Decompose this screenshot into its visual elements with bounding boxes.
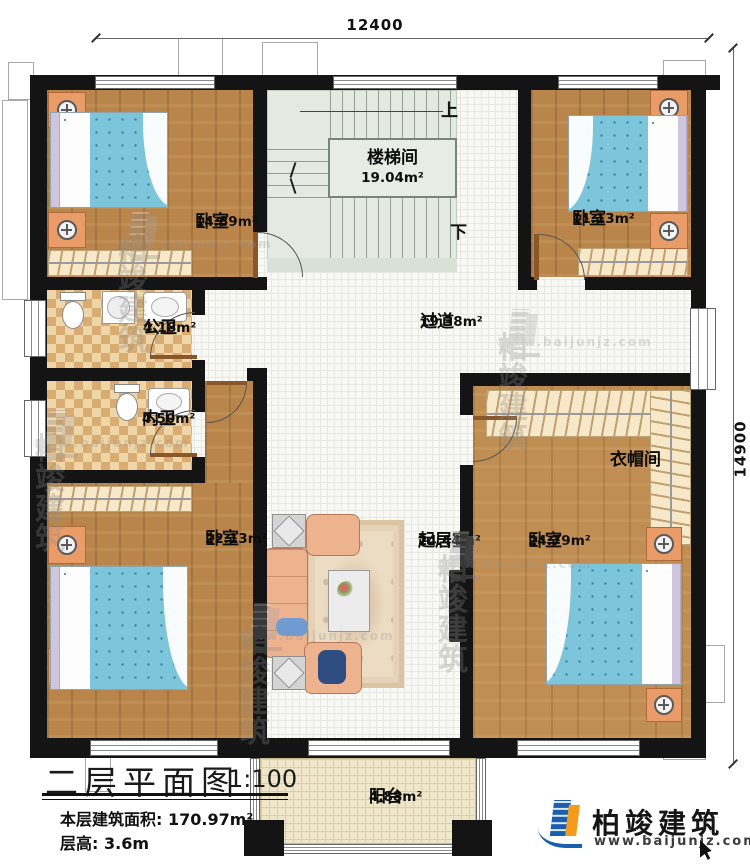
window [690,308,716,390]
plan-scale: 1:100 [228,765,297,793]
balcony-sliding-door [308,740,450,756]
window [95,76,215,89]
stair-treads-turn [267,138,330,198]
washing-machine [102,291,135,324]
floor-area-line: 本层建筑面积: 170.97m² [60,806,253,830]
side-table [272,514,306,548]
wall-interior [460,465,473,740]
floor-height-line: 层高: 3.6m [60,830,149,854]
window [90,740,218,756]
stair-down-label: 下 [450,218,467,243]
floor-plan: 楼梯间 19.04m² 上 下 [0,0,750,865]
stair-up-label: 上 [441,96,458,121]
window [558,76,658,89]
window [24,300,46,357]
wall-interior [585,277,706,290]
eave-outline [2,100,28,300]
nightstand [48,212,86,248]
wall-right [691,75,706,758]
toilet-tank [60,292,86,301]
wall-interior [30,277,267,290]
brand-logo-icon [540,800,586,850]
wall-interior [30,368,205,381]
nightstand [646,688,682,722]
brand-logo: 柏竣建筑 www.baijunjz.com [540,798,740,858]
stairwell-area-value: 19.04m² [361,170,424,186]
nightstand [48,526,86,564]
window [517,740,640,756]
dimension-line-top [95,38,710,39]
nightstand [650,213,688,249]
wall-interior [460,373,706,386]
dimension-right-value: 14900 [732,420,750,477]
dimension-top-value: 12400 [346,16,403,34]
sofa [264,548,308,658]
bed-bedroom-tl [50,112,168,208]
balcony-post [452,820,492,856]
stair-treads-upper [330,90,457,138]
bed-bedroom-br [546,563,682,685]
wall-interior [30,470,192,483]
wall-interior [253,90,267,232]
dimension-line-right [733,48,734,765]
person-figure [318,650,346,684]
toilet-tank [114,384,140,393]
toilet-bowl [116,393,138,421]
wall-interior [253,368,267,740]
bed-bedroom-tr [568,115,688,212]
bedroom-tr-closet [578,248,688,276]
person-figure [276,618,308,636]
side-table [272,656,306,690]
brand-website: www.baijunjz.com [594,834,750,849]
wall-interior [518,90,531,290]
stairwell-label-box: 楼梯间 19.04m² [328,138,457,198]
window [24,400,46,457]
nightstand [646,527,682,561]
wall-interior [460,373,473,415]
bed-bedroom-bl [50,566,188,690]
stair-treads-lower [330,198,457,258]
coffee-table [328,570,370,632]
balcony-rail-bottom [250,844,486,854]
eave-outline [178,38,223,77]
wall-interior [192,457,205,483]
toilet-bowl [62,301,84,329]
armchair [306,514,360,556]
plan-title: 二层平面图 [45,756,240,804]
stairwell-name: 楼梯间 [367,150,418,168]
bedroom-tl-closet [48,250,192,276]
stair-direction-line [300,111,443,112]
eave-outline [262,42,318,77]
bedroom-bl-closet [48,486,192,512]
window [333,76,457,89]
title-underline [42,799,288,800]
title-underline [42,793,288,796]
